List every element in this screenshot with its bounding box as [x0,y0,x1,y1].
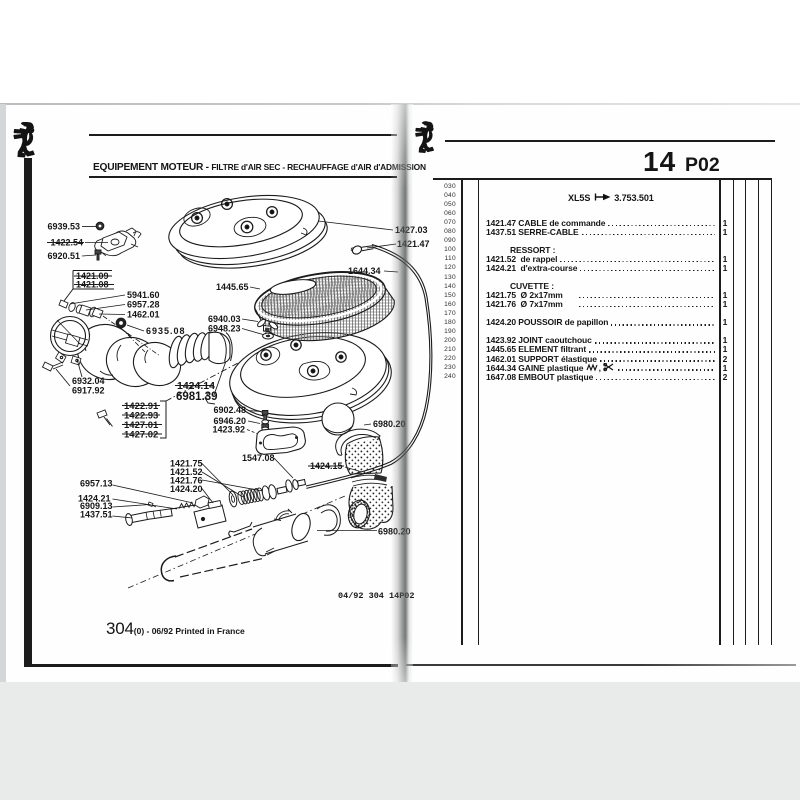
svg-text:6957.13: 6957.13 [80,479,113,489]
svg-text:6917.92: 6917.92 [72,386,105,396]
svg-text:1427.02: 1427.02 [124,430,158,441]
svg-text:6935.08: 6935.08 [146,326,186,336]
svg-text:6939.53: 6939.53 [47,222,80,232]
svg-text:6940.03: 6940.03 [208,314,241,324]
svg-text:1437.51: 1437.51 [80,510,113,520]
svg-text:1547.08: 1547.08 [242,453,275,463]
svg-text:1424.20: 1424.20 [170,484,203,494]
svg-text:1423.92: 1423.92 [212,425,245,435]
svg-text:5941.60: 5941.60 [127,290,160,300]
svg-text:6932.04: 6932.04 [72,376,105,386]
svg-text:6957.28: 6957.28 [127,300,160,310]
svg-text:1445.65: 1445.65 [216,282,249,292]
svg-text:6948.23: 6948.23 [208,324,241,334]
svg-text:6902.48: 6902.48 [213,405,246,415]
svg-text:1644.34: 1644.34 [348,266,381,276]
svg-text:1462.01: 1462.01 [127,310,160,320]
svg-text:6920.51: 6920.51 [47,251,80,261]
